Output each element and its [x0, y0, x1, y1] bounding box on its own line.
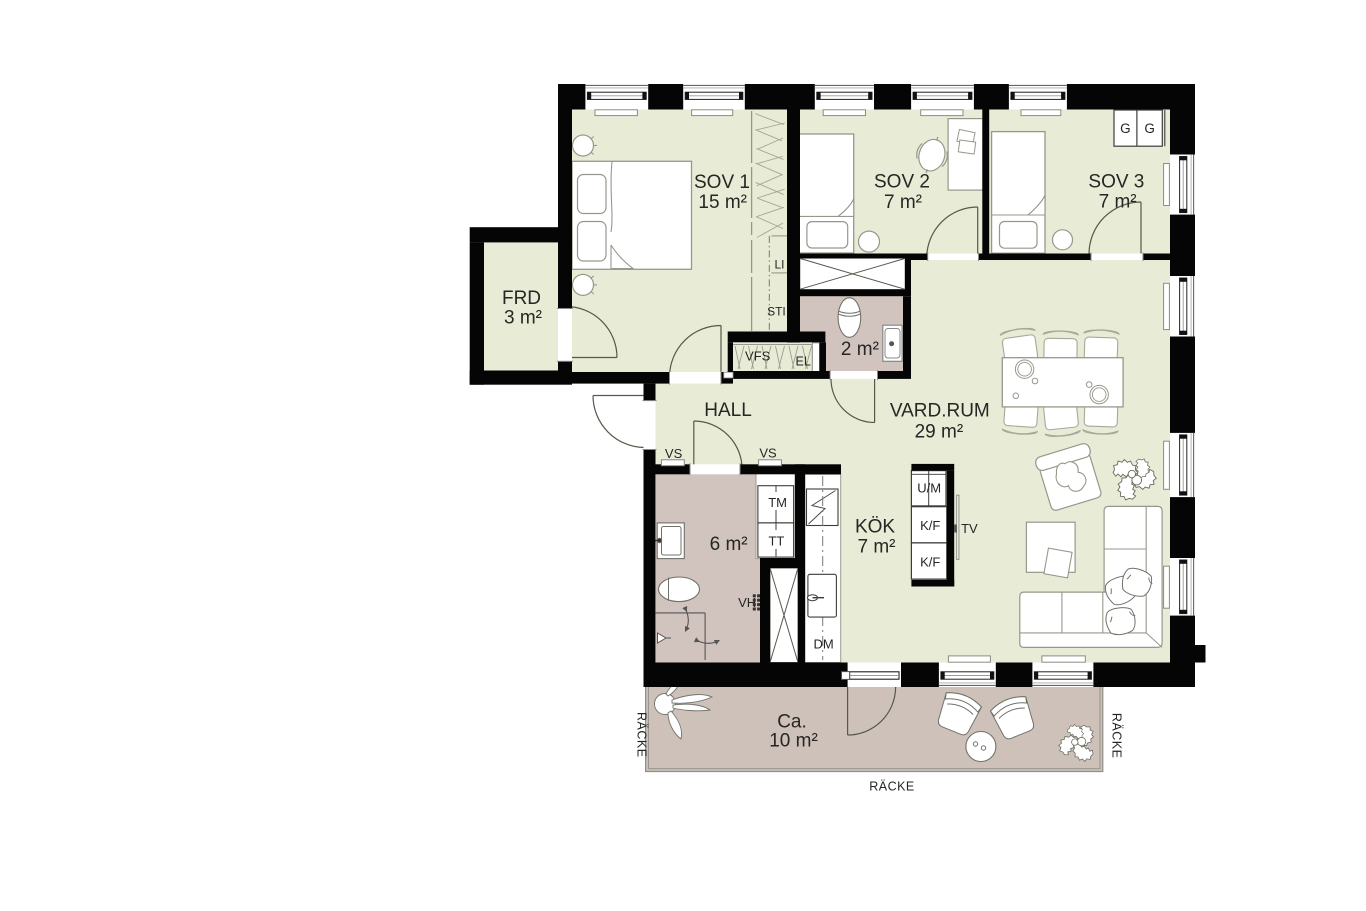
- svg-text:RÄCKE: RÄCKE: [635, 712, 649, 758]
- svg-text:FRD: FRD: [502, 288, 541, 309]
- svg-text:SOV 2: SOV 2: [874, 172, 930, 193]
- svg-text:VS: VS: [759, 446, 777, 461]
- svg-text:U/M: U/M: [917, 481, 941, 496]
- svg-text:SOV 1: SOV 1: [694, 172, 750, 193]
- svg-text:3 m²: 3 m²: [504, 308, 542, 329]
- svg-text:VFS: VFS: [745, 349, 771, 364]
- svg-text:KÖK: KÖK: [855, 517, 895, 538]
- svg-text:DM: DM: [813, 637, 833, 652]
- svg-text:TV: TV: [961, 521, 978, 536]
- svg-text:G: G: [1120, 121, 1131, 136]
- svg-text:VS: VS: [665, 446, 683, 461]
- svg-text:Ca.: Ca.: [777, 712, 807, 733]
- svg-text:TT: TT: [768, 534, 784, 549]
- svg-text:EL: EL: [796, 355, 811, 369]
- svg-text:K/F: K/F: [920, 518, 940, 533]
- svg-text:HALL: HALL: [704, 400, 752, 421]
- svg-text:29 m²: 29 m²: [915, 422, 964, 443]
- svg-text:7 m²: 7 m²: [884, 192, 922, 213]
- svg-text:SOV 3: SOV 3: [1088, 172, 1144, 193]
- svg-text:RÄCKE: RÄCKE: [1109, 713, 1123, 759]
- svg-text:VARD.RUM: VARD.RUM: [890, 401, 990, 422]
- svg-text:LI: LI: [774, 258, 784, 272]
- svg-text:STI: STI: [767, 305, 786, 319]
- svg-text:10 m²: 10 m²: [769, 731, 818, 752]
- svg-text:2 m²: 2 m²: [841, 339, 879, 360]
- svg-text:K/F: K/F: [920, 555, 940, 570]
- svg-text:6 m²: 6 m²: [710, 534, 748, 555]
- svg-text:7 m²: 7 m²: [1099, 192, 1137, 213]
- svg-text:TM: TM: [768, 495, 787, 510]
- svg-text:15 m²: 15 m²: [698, 192, 747, 213]
- svg-text:7 m²: 7 m²: [858, 537, 896, 558]
- svg-text:RÄCKE: RÄCKE: [869, 780, 915, 794]
- svg-text:G: G: [1144, 121, 1155, 136]
